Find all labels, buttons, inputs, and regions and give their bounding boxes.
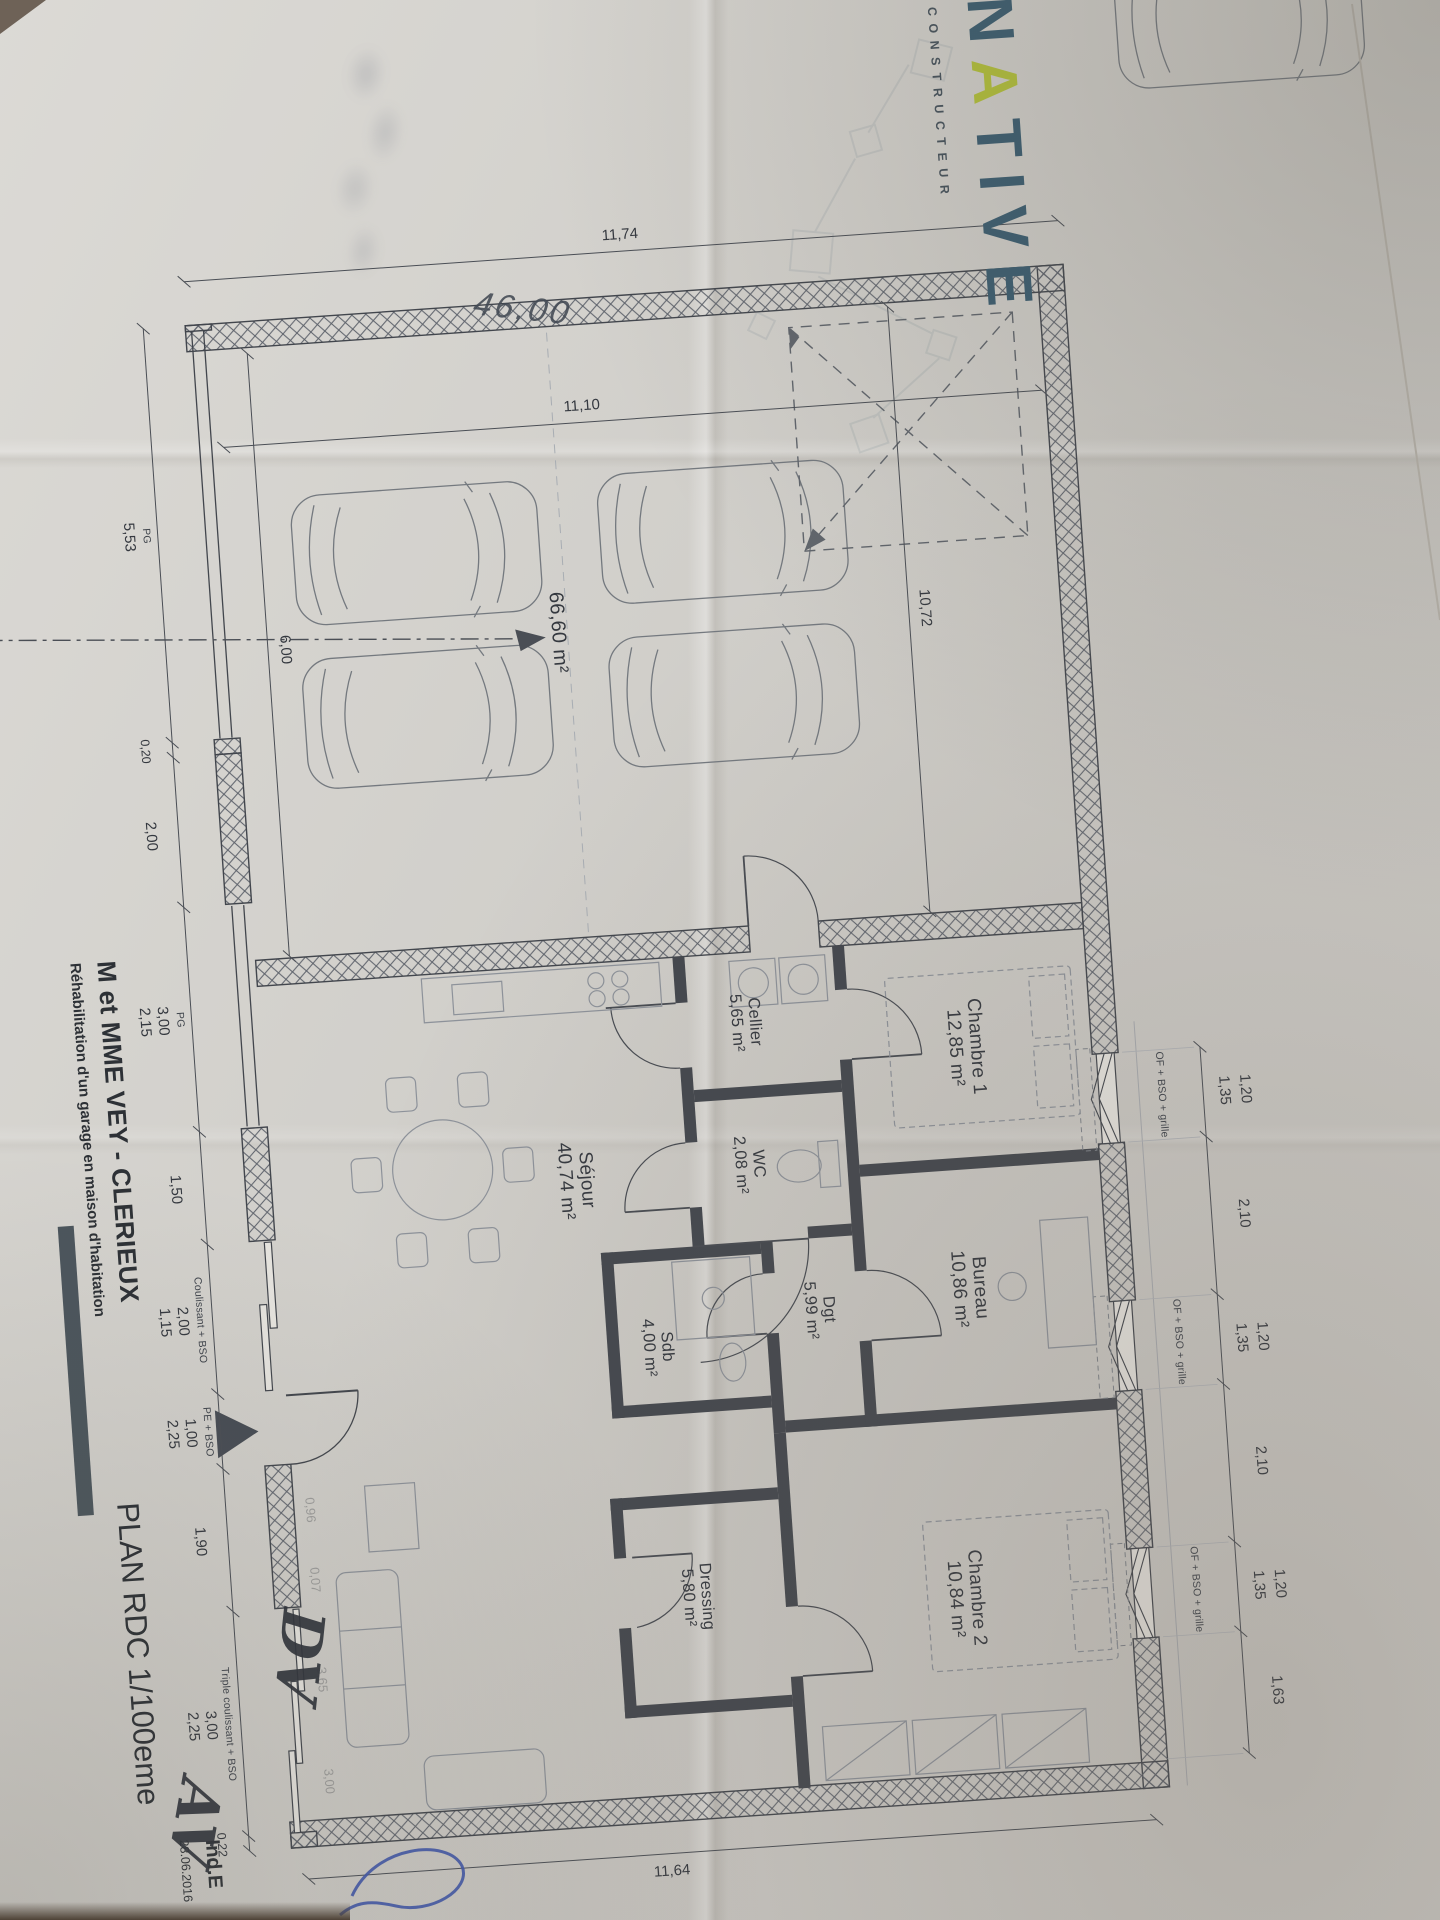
dim-win2-h: 1,35	[1232, 1322, 1250, 1352]
floor-plan-drawing: NATIVE CONSTRUCTEUR Chambre 112,85 m² Bu…	[0, 0, 1440, 1920]
dim-garage-inner: 6,00	[276, 634, 294, 664]
x-arrowhead-2	[789, 327, 801, 350]
dim-left-total: 11,74	[601, 226, 638, 245]
furniture	[295, 934, 1126, 1816]
logo-letter: E	[972, 261, 1047, 309]
dim-wall3: 1,90	[191, 1527, 209, 1557]
room-label-sejour: Séjour40,74 m²	[553, 1141, 599, 1221]
faint-dim-4: 3,00	[321, 1768, 337, 1794]
room-label-chambre1: Chambre 112,85 m²	[942, 997, 990, 1096]
axis-dash-dot-line	[0, 603, 526, 677]
dim-right-total: 11,64	[653, 1862, 690, 1881]
logo-letter: T	[962, 117, 1037, 161]
dim-top-end: 1,63	[1268, 1675, 1286, 1705]
logo-letter: I	[966, 170, 1039, 193]
dim-pe-h: 2,25	[163, 1419, 181, 1449]
dim-win2-w: 1,20	[1253, 1321, 1271, 1351]
dim-win1-w: 1,20	[1236, 1074, 1254, 1104]
dim-wall1: 2,00	[142, 821, 160, 851]
x-arrowhead-1	[803, 528, 826, 551]
dim-pg2-h: 2,15	[136, 1007, 154, 1037]
pe-label: PE + BSO	[200, 1407, 215, 1457]
room-label-dgt: Dgt5,99 m²	[800, 1280, 840, 1340]
room-label-chambre2: Chambre 210,84 m²	[942, 1549, 990, 1648]
room-label-wc: WC2,08 m²	[729, 1134, 769, 1194]
dim-pier: 0,20	[137, 739, 152, 764]
room-label-bureau: Bureau10,86 m²	[946, 1248, 992, 1328]
faint-dim-2: 0,07	[307, 1567, 323, 1593]
dashed-x-square	[789, 312, 1028, 551]
logo-letter: N	[953, 0, 1028, 46]
logo-letter: A	[958, 55, 1033, 106]
exterior-walls	[185, 264, 1169, 1848]
bottom-openings	[140, 325, 389, 1836]
dim-coul-h: 1,15	[156, 1308, 174, 1338]
dim-triple-w: 3,00	[202, 1710, 220, 1740]
dim-garage-width: 10,72	[915, 589, 934, 628]
garage-area-label: 66,60 m²	[544, 591, 571, 674]
handwritten-note-1: DV	[260, 1606, 337, 1707]
pg1-label: PG	[140, 528, 152, 544]
dim-wall2: 1,50	[166, 1174, 184, 1204]
table-edge	[0, 1902, 350, 1920]
dim-coul-w: 2,00	[174, 1306, 192, 1336]
room-label-cellier: Cellier5,65 m²	[725, 992, 765, 1052]
dim-pe-w: 1,00	[181, 1418, 199, 1448]
dim-win3-w: 1,20	[1270, 1568, 1288, 1598]
room-label-sdb: Sdb4,00 m²	[638, 1317, 678, 1377]
faint-dim-1: 0,96	[302, 1497, 318, 1523]
dim-triple-h: 2,25	[184, 1712, 202, 1742]
logo-letter: V	[968, 203, 1043, 251]
dim-win1-h: 1,35	[1215, 1075, 1233, 1105]
windows-of-bso	[1076, 1047, 1156, 1646]
dim-garage-depth: 11,10	[563, 397, 600, 416]
photo-of-floor-plan: NATIVE CONSTRUCTEUR Chambre 112,85 m² Bu…	[0, 0, 1440, 1920]
dim-win-gap1: 2,10	[1235, 1198, 1253, 1228]
plan-linework	[0, 0, 1440, 1920]
pg2-label: PG	[173, 1012, 185, 1028]
dim-win3-h: 1,35	[1250, 1570, 1268, 1600]
room-label-dressing: Dressing5,80 m²	[677, 1562, 717, 1632]
dim-win-gap2: 2,10	[1252, 1445, 1270, 1475]
dim-pg2-w: 3,00	[154, 1006, 172, 1036]
dim-pg1-w: 5,53	[120, 522, 138, 552]
